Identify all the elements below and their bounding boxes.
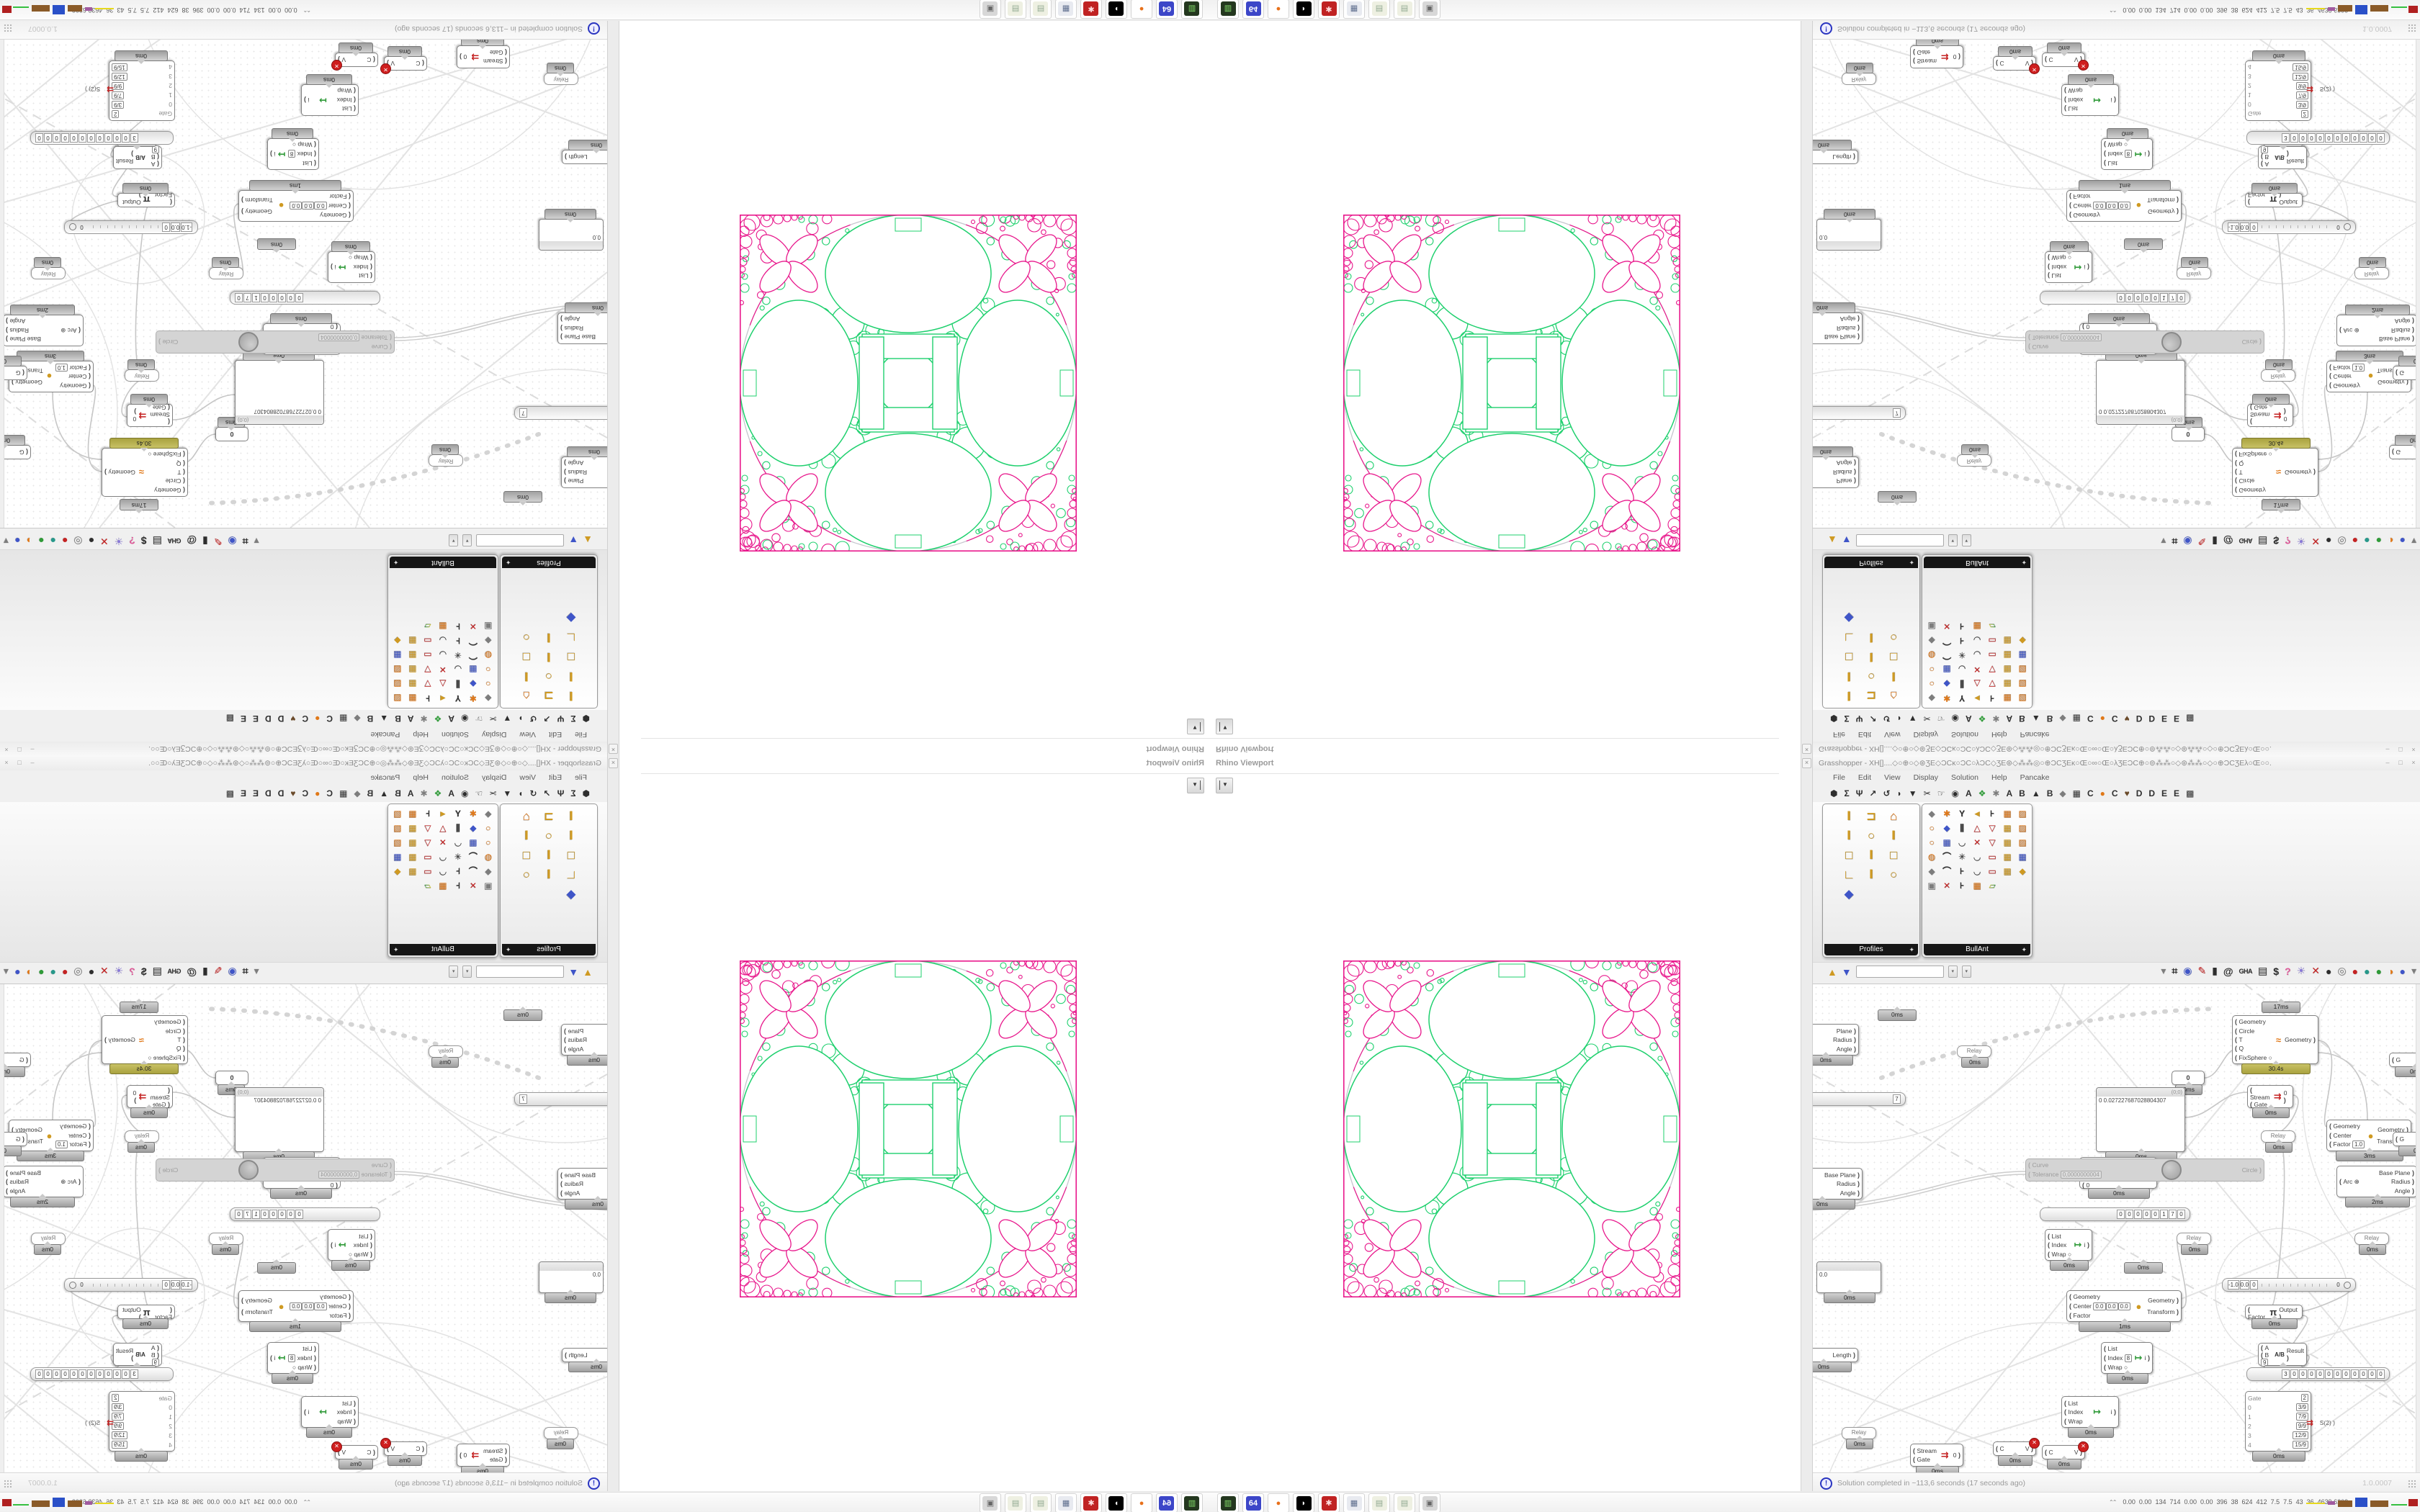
minimize-button[interactable]: – [28, 745, 37, 754]
bullant-component-icon[interactable]: ▨ [390, 662, 405, 676]
gh-component-node[interactable]: ( List( Index( Wrap↦i )0ms [301, 84, 359, 116]
toolbar-icon[interactable]: GHA [168, 968, 181, 975]
bullant-component-icon[interactable]: ◆ [1924, 865, 1939, 878]
component-tab-icon[interactable]: A [448, 714, 454, 724]
combo-dropdown-button[interactable]: ▾ [1948, 534, 1958, 546]
bullant-component-icon[interactable]: ▭ [421, 865, 435, 878]
profile-component-icon[interactable]: ∟ [1838, 865, 1860, 884]
viewport-dropdown-button[interactable]: ▼ [1187, 719, 1204, 734]
toolbar-icon[interactable]: $ [2273, 966, 2279, 977]
taskbar-app-notepad[interactable]: ▤ [1368, 1493, 1390, 1512]
palette-bullant-title[interactable]: BullAnt ✦ [390, 944, 496, 955]
bullant-component-icon[interactable]: ◍ [1924, 850, 1939, 864]
combo-dropdown-button[interactable]: ▾ [1962, 534, 1971, 546]
menu-item-view[interactable]: View [519, 730, 536, 739]
relay-node[interactable]: Relay0ms [2177, 267, 2211, 279]
profile-component-icon[interactable]: ◆ [1838, 885, 1860, 904]
component-tab-icon[interactable]: A [1966, 714, 1972, 724]
profile-component-icon[interactable]: ∟ [560, 628, 582, 647]
menu-item-edit[interactable]: Edit [1858, 730, 1871, 739]
palette-profiles-title[interactable]: Profiles ✦ [502, 944, 596, 955]
gh-component-node[interactable]: ( Arc ⊕Base Plane )Radius )Angle )2ms [2336, 1166, 2417, 1197]
bullant-component-icon[interactable]: ⊦ [1955, 865, 1969, 878]
toolbar-icon[interactable]: ▼ [568, 966, 578, 978]
gh-component-node[interactable]: ( GT )0ms [0, 445, 31, 459]
palette-expand-icon[interactable]: ✦ [506, 557, 511, 568]
taskbar-app-rhino[interactable]: ◗ [1293, 1493, 1314, 1512]
profile-component-icon[interactable]: Ⅰ [1838, 686, 1860, 705]
bullant-component-icon[interactable]: ○ [1924, 836, 1939, 850]
close-button[interactable]: × [2409, 758, 2418, 767]
bullant-component-icon[interactable]: ✳ [451, 850, 465, 864]
gh-component-node[interactable]: ( Arc ⊕Base Plane )Radius )Angle )2ms [2336, 315, 2417, 346]
bullant-component-icon[interactable]: ▦ [405, 822, 420, 835]
bullant-component-icon[interactable]: △ [436, 677, 450, 690]
menu-item-edit[interactable]: Edit [549, 730, 562, 739]
relay-node[interactable]: Relay0ms [544, 73, 578, 85]
profile-component-icon[interactable]: Ⅰ [1883, 827, 1904, 845]
gh-canvas[interactable]: 17ms( Geometry( Circle( T( Q( FixSphere … [1813, 984, 2420, 1473]
minimize-button[interactable]: – [28, 758, 37, 767]
component-tab-icon[interactable]: ♥ [290, 788, 295, 798]
toolbar-icon[interactable]: ● [2352, 536, 2358, 547]
bullant-component-icon[interactable]: ▦ [2015, 648, 2030, 662]
profile-component-icon[interactable]: ○ [1860, 827, 1882, 845]
toolbar-icon[interactable]: ● [2326, 966, 2331, 977]
viewport-dropdown-button[interactable]: ▼ [1187, 778, 1204, 793]
maximize-button[interactable]: □ [15, 758, 24, 767]
menu-item-file[interactable]: File [575, 773, 587, 782]
component-tab-icon[interactable]: ▩ [226, 714, 234, 724]
gh-component-node[interactable]: ( List( Index( Wrap ○↦i )0ms [2045, 1229, 2092, 1261]
taskbar-app-rhino[interactable]: ◗ [1106, 0, 1127, 19]
grasshopper-titlebar[interactable]: Grasshopper - XH[]....◇○⊕○◇⊛ƷE◇ƆCκ○ƆC○λƆ… [0, 756, 607, 770]
gh-component-node[interactable]: ( Geometry( Center 0.00.00.0( Factor●Geo… [238, 190, 354, 222]
toolbar-icon[interactable]: ● [2364, 966, 2370, 977]
taskbar-app-firefox[interactable]: ● [1131, 0, 1152, 19]
palette-expand-icon[interactable]: ✦ [393, 557, 399, 568]
profile-component-icon[interactable]: Ⅰ [1883, 667, 1904, 685]
profile-component-icon[interactable]: Ⅰ [538, 846, 560, 865]
panel-node[interactable]: 0.00ms [1816, 1261, 1881, 1293]
profile-component-icon[interactable]: Ⅰ [1860, 628, 1882, 647]
bullant-component-icon[interactable]: ▦ [1940, 836, 1954, 850]
toolbar-icon[interactable]: ✎ [214, 965, 223, 977]
bullant-component-icon[interactable]: ▦ [405, 662, 420, 676]
component-tab-icon[interactable]: A [408, 714, 414, 724]
profile-component-icon[interactable]: ⊐ [1860, 686, 1882, 705]
component-tab-icon[interactable]: ▼ [1909, 788, 1917, 798]
pane-divider[interactable]: × [607, 20, 619, 756]
component-tab-icon[interactable]: ▼ [503, 714, 511, 724]
value-slider-node[interactable]: -1.00.000 [64, 220, 198, 234]
component-tab-icon[interactable]: E [253, 714, 259, 724]
taskbar-app-firefox[interactable]: ● [1131, 1493, 1152, 1512]
component-tab-icon[interactable]: ▲ [2032, 788, 2040, 798]
profile-component-icon[interactable]: ⌂ [1883, 807, 1904, 826]
profile-component-icon[interactable]: ⊐ [538, 807, 560, 826]
relay-node[interactable]: Relay0ms [31, 1233, 66, 1245]
bullant-component-icon[interactable]: ▦ [466, 662, 480, 676]
bullant-component-icon[interactable]: ▨ [2015, 691, 2030, 705]
number-slider-node[interactable]: 00000170 [2040, 1207, 2190, 1221]
panel-node[interactable]: (0;0)0 0.0272276870288043070ms [235, 1087, 324, 1152]
relay-node[interactable]: Relay0ms [125, 1130, 159, 1143]
bullant-component-icon[interactable]: ▨ [390, 822, 405, 835]
toolbar-icon[interactable]: ▲ [583, 966, 593, 978]
profile-component-icon[interactable]: ⊐ [538, 686, 560, 705]
component-tab-icon[interactable]: ◆ [354, 714, 360, 724]
resize-grip[interactable] [2408, 24, 2416, 32]
stream-gate-node[interactable]: Gate203/917/929/9312/9415/9⇉S(2) )0ms [2245, 60, 2311, 121]
profile-component-icon[interactable]: ○ [538, 827, 560, 845]
gh-component-node[interactable]: ( Arc ⊕Base Plane )Radius )Angle )0ms [1813, 1168, 1863, 1200]
profile-component-icon[interactable]: ○ [1860, 667, 1882, 685]
bullant-component-icon[interactable]: ✳ [1955, 648, 1969, 662]
bullant-component-icon[interactable]: ◄ [436, 691, 450, 705]
bullant-component-icon[interactable]: ⊦ [451, 619, 465, 633]
gh-component-node[interactable]: ( Geometry( Circle( T( Q( FixSphere ○≈Ge… [2232, 1015, 2318, 1064]
gh-component-node[interactable]: ( CV )✕0ms [335, 53, 378, 67]
number-slider-node[interactable]: 300000000000 [2246, 131, 2390, 145]
component-tab-icon[interactable]: ❖ [1978, 714, 1986, 724]
gh-component-node[interactable]: ( Geometry( Center 0.00.00.0( Factor●Geo… [2066, 1290, 2182, 1322]
bullant-component-icon[interactable]: ▨ [390, 677, 405, 690]
maximize-button[interactable]: □ [2396, 758, 2405, 767]
gh-component-node[interactable]: ( Curve( Tolerance 0,0000000004Circle ) [2025, 1158, 2264, 1182]
gh-component-node[interactable]: ( List( Index( Wrap↦i )0ms [2061, 1396, 2119, 1428]
toolbar-icon[interactable]: ◉ [2183, 535, 2192, 547]
profiler-tag[interactable]: 17ms [120, 1002, 158, 1013]
bullant-component-icon[interactable]: ✕ [466, 619, 480, 633]
gh-component-node[interactable]: ( CurveLength )0ms [1813, 150, 1858, 164]
component-tab-icon[interactable]: A [448, 788, 454, 798]
bullant-component-icon[interactable]: ✕ [1940, 879, 1954, 893]
bullant-component-icon[interactable]: ▭ [1985, 865, 1999, 878]
bullant-component-icon[interactable]: ▦ [1940, 662, 1954, 676]
component-tab-icon[interactable]: D [265, 714, 272, 724]
bullant-component-icon[interactable]: ⊦ [1985, 807, 1999, 821]
bullant-component-icon[interactable]: ◍ [1924, 648, 1939, 662]
profile-component-icon[interactable]: ∟ [1838, 628, 1860, 647]
profile-component-icon[interactable]: Ⅰ [1838, 807, 1860, 826]
menu-item-display[interactable]: Display [482, 730, 506, 739]
component-tab-icon[interactable]: ⬢ [583, 788, 590, 798]
bullant-component-icon[interactable]: ▣ [1924, 879, 1939, 893]
profile-component-icon[interactable]: ∟ [560, 865, 582, 884]
bullant-component-icon[interactable]: ⊦ [421, 691, 435, 705]
profiler-tag[interactable]: 0ms [1878, 1009, 1917, 1021]
bullant-component-icon[interactable]: ◆ [1940, 822, 1954, 835]
grasshopper-titlebar[interactable]: Grasshopper - XH[]....◇○⊕○◇⊛ƷE◇ƆCκ○ƆC○λƆ… [0, 742, 607, 756]
taskbar-app-red-gear[interactable]: ✱ [1318, 0, 1340, 19]
toolbar-icon[interactable]: ? [2285, 966, 2291, 977]
toolbar-icon[interactable]: ◎ [73, 965, 82, 977]
canvas-scrollbar[interactable] [2416, 39, 2420, 528]
component-tab-icon[interactable]: ● [2100, 714, 2105, 724]
taskbar-app-printer[interactable]: ▣ [1419, 1493, 1440, 1512]
bullant-component-icon[interactable]: ▦ [405, 850, 420, 864]
relay-node[interactable]: Relay0ms [209, 267, 243, 279]
bullant-component-icon[interactable]: △ [436, 822, 450, 835]
bullant-component-icon[interactable]: ◡ [1955, 662, 1969, 676]
menu-item-display[interactable]: Display [1914, 730, 1938, 739]
profile-component-icon[interactable]: ◆ [1838, 608, 1860, 627]
bullant-component-icon[interactable]: ▦ [405, 836, 420, 850]
component-tab-icon[interactable]: ↺ [1883, 714, 1890, 724]
bullant-component-icon[interactable]: ○ [481, 677, 496, 690]
component-tab-icon[interactable]: ↗ [544, 788, 551, 798]
toolbar-icon[interactable]: ▼ [1842, 966, 1852, 978]
bullant-component-icon[interactable]: ○ [481, 836, 496, 850]
bullant-component-icon[interactable]: ▦ [2000, 836, 2015, 850]
gh-component-node[interactable]: ( A( B 9A/BResult )0ms [113, 146, 162, 169]
bullant-component-icon[interactable]: ▦ [2000, 865, 2015, 878]
bullant-component-icon[interactable]: ✳ [451, 648, 465, 662]
bullant-component-icon[interactable]: ▽ [421, 662, 435, 676]
collapse-arrows-icon[interactable]: ⌃⌃ [2109, 6, 2115, 13]
viewport-dropdown-button[interactable]: ▼ [1216, 778, 1233, 793]
resize-grip[interactable] [2408, 1480, 2416, 1488]
toolbar-icon[interactable]: ● [2364, 536, 2370, 547]
palette-bullant-title[interactable]: BullAnt ✦ [390, 557, 496, 568]
bullant-component-icon[interactable]: ◍ [481, 648, 496, 662]
maximize-button[interactable]: □ [15, 745, 24, 754]
taskbar-app-notepad-2[interactable]: ▤ [1005, 1493, 1026, 1512]
toolbar-icon[interactable]: ▮ [2212, 965, 2218, 977]
combo-dropdown-button[interactable]: ▾ [1948, 966, 1958, 978]
bullant-component-icon[interactable]: Y [1955, 807, 1969, 821]
relay-node[interactable]: Relay0ms [2177, 1233, 2211, 1245]
gh-canvas[interactable]: 17ms( Geometry( Circle( T( Q( FixSphere … [0, 984, 607, 1473]
profile-component-icon[interactable]: □ [1838, 846, 1860, 865]
toolbar-icon[interactable]: ◑ [2388, 966, 2393, 977]
bullant-component-icon[interactable]: ▦ [2000, 648, 2015, 662]
menu-item-view[interactable]: View [1884, 773, 1901, 782]
toolbar-icon[interactable]: ◎ [2337, 965, 2346, 977]
toolbar-icon[interactable]: ✕ [100, 535, 109, 547]
toolbar-icon[interactable]: $ [2273, 536, 2279, 547]
gh-component-node[interactable]: ( FactorπOutput )0ms [2245, 1305, 2303, 1319]
taskbar-app-calculator[interactable]: ▦ [1055, 0, 1077, 19]
toolbar-icon[interactable]: ▤ [153, 535, 162, 547]
component-tab-icon[interactable]: ☞ [475, 788, 483, 798]
bullant-component-icon[interactable]: ◡ [1970, 865, 1984, 878]
bullant-component-icon[interactable]: ◄ [1970, 807, 1984, 821]
toolbar-icon[interactable]: ✎ [2197, 535, 2206, 547]
gh-component-node[interactable]: Plane )Radius )Angle )0ms [1813, 456, 1859, 488]
toolbar-icon[interactable]: ▲ [1827, 535, 1837, 546]
component-tab-icon[interactable]: ◉ [461, 714, 468, 724]
profile-component-icon[interactable]: □ [560, 846, 582, 865]
bullant-component-icon[interactable]: ▦ [2000, 662, 2015, 676]
gh-canvas[interactable]: 17ms( Geometry( Circle( T( Q( FixSphere … [0, 39, 607, 528]
gh-component-node[interactable]: ( Stream( Gate⇉0 )0ms [457, 1444, 510, 1467]
bullant-component-icon[interactable]: Y [451, 807, 465, 821]
bullant-component-icon[interactable]: ▦ [2000, 677, 2015, 690]
taskbar-app-system-monitor[interactable]: ▥ [1217, 0, 1239, 19]
bullant-component-icon[interactable]: ▭ [421, 634, 435, 647]
bullant-component-icon[interactable]: Y [1955, 691, 1969, 705]
gh-component-node[interactable]: ( Arc ⊕Base Plane )Radius )Angle )2ms [3, 1166, 84, 1197]
toolbar-icon[interactable]: ? [129, 536, 135, 547]
toolbar-icon[interactable]: ▾ [254, 535, 259, 547]
profile-component-icon[interactable]: Ⅰ [560, 667, 582, 685]
bullant-component-icon[interactable]: ▨ [2015, 807, 2030, 821]
gh-component-node[interactable]: 00ms [2172, 427, 2205, 441]
gh-component-node[interactable]: ( List( Index 8( Wrap ○↦i )0ms [267, 138, 319, 170]
bullant-component-icon[interactable]: ◆ [481, 865, 496, 878]
component-tab-icon[interactable]: ↺ [529, 714, 537, 724]
bullant-component-icon[interactable]: ▭ [1985, 850, 1999, 864]
component-tab-icon[interactable]: ♥ [290, 714, 295, 724]
bullant-component-icon[interactable]: ✳ [1955, 850, 1969, 864]
taskbar-app-floppy-64[interactable]: 64 [1242, 1493, 1264, 1512]
bullant-component-icon[interactable]: ▦ [405, 807, 420, 821]
relay-node[interactable]: Relay0ms [31, 267, 66, 279]
taskbar-app-calculator[interactable]: ▦ [1343, 1493, 1365, 1512]
gh-component-node[interactable]: ( FactorπOutput )0ms [2245, 193, 2303, 207]
profiler-tag[interactable]: 0ms [2124, 1262, 2163, 1274]
gh-component-node[interactable]: ( List( Index( Wrap↦i )0ms [301, 1396, 359, 1428]
canvas-scrollbar[interactable] [2416, 984, 2420, 1473]
bullant-component-icon[interactable]: △ [1970, 822, 1984, 835]
relay-node[interactable]: Relay0ms [429, 454, 463, 467]
relay-node[interactable]: Relay0ms [2354, 267, 2389, 279]
toolbar-icon[interactable]: ▾ [2411, 535, 2416, 547]
menu-item-file[interactable]: File [1833, 730, 1845, 739]
bullant-component-icon[interactable]: ⌒ [1940, 865, 1954, 878]
profile-component-icon[interactable]: □ [516, 846, 537, 865]
component-tab-icon[interactable]: ◗ [518, 714, 523, 724]
profile-component-icon[interactable]: ◆ [560, 885, 582, 904]
toolbar-icon[interactable]: ▮ [202, 535, 208, 547]
gh-component-node[interactable]: ( GT )0ms [0, 1053, 31, 1067]
bullant-component-icon[interactable]: ◆ [1940, 677, 1954, 690]
toolbar-icon[interactable]: ● [2400, 536, 2406, 547]
toolbar-icon[interactable]: ☀ [115, 535, 124, 547]
bullant-component-icon[interactable]: ▨ [2015, 677, 2030, 690]
palette-expand-icon[interactable]: ✦ [1909, 557, 1914, 568]
component-tab-icon[interactable]: ● [2100, 788, 2105, 798]
component-tab-icon[interactable]: C [326, 714, 333, 724]
gh-component-node[interactable]: ( Curve( Tolerance 0,0000000004Circle ) [2025, 330, 2264, 354]
bullant-component-icon[interactable]: ▦ [2000, 807, 2015, 821]
bullant-component-icon[interactable]: ▽ [421, 836, 435, 850]
taskbar-app-floppy-64[interactable]: 64 [1156, 1493, 1178, 1512]
toolbar-icon[interactable]: ✕ [100, 965, 109, 977]
component-tab-icon[interactable]: ✂ [489, 714, 496, 724]
profile-component-icon[interactable]: Ⅰ [1860, 647, 1882, 666]
stream-gate-node[interactable]: Gate203/917/929/9312/9415/9⇉S(2) )0ms [109, 60, 175, 121]
pane-divider[interactable]: × [1801, 756, 1813, 1492]
component-tab-icon[interactable]: ☞ [1937, 788, 1945, 798]
profiler-tag[interactable]: 0ms [1878, 491, 1917, 503]
bullant-component-icon[interactable]: ▦ [405, 865, 420, 878]
toolbar-icon[interactable]: GHA [2239, 968, 2253, 975]
component-tab-icon[interactable]: Ψ [557, 714, 565, 724]
bullant-component-icon[interactable]: ◆ [1924, 807, 1939, 821]
toolbar-icon[interactable]: ● [62, 966, 68, 977]
bullant-component-icon[interactable]: ▣ [1924, 619, 1939, 633]
bullant-component-icon[interactable]: ○ [1924, 677, 1939, 690]
toolbar-icon[interactable]: ◉ [228, 535, 237, 547]
taskbar-app-calculator[interactable]: ▦ [1055, 1493, 1077, 1512]
bullant-component-icon[interactable]: ◆ [466, 677, 480, 690]
value-slider-node[interactable]: -1.00.000 [2222, 220, 2356, 234]
panel-node[interactable]: (0;0)0 0.0272276870288043070ms [235, 360, 324, 425]
component-tab-icon[interactable]: ◆ [2059, 788, 2066, 798]
bullant-component-icon[interactable]: ⊦ [451, 634, 465, 647]
toolbar-icon[interactable]: ? [2285, 536, 2291, 547]
component-tab-icon[interactable]: E [2161, 714, 2167, 724]
close-icon[interactable]: × [609, 758, 618, 768]
toolbar-icon[interactable]: @ [2223, 966, 2233, 977]
close-icon[interactable]: × [1802, 758, 1811, 768]
component-tab-icon[interactable]: ↗ [1869, 788, 1876, 798]
panel-node[interactable]: (0;0)0 0.0272276870288043070ms [2096, 1087, 2185, 1152]
collapse-arrows-icon[interactable]: ⌃⌃ [2109, 1499, 2115, 1506]
component-tab-icon[interactable]: ✂ [489, 788, 496, 798]
menu-item-solution[interactable]: Solution [1951, 730, 1978, 739]
number-slider-node[interactable]: 300000000000 [2246, 1367, 2390, 1381]
bullant-component-icon[interactable]: ◡ [1970, 648, 1984, 662]
toolbar-icon[interactable]: ▤ [153, 965, 162, 977]
menu-item-pancake[interactable]: Pancake [2020, 730, 2050, 739]
bullant-component-icon[interactable]: ◄ [1970, 691, 1984, 705]
component-tab-icon[interactable]: D [265, 788, 272, 798]
bullant-component-icon[interactable]: ◆ [1924, 634, 1939, 647]
gh-component-node[interactable]: ( List( Index( Wrap ○↦i )0ms [328, 1229, 375, 1261]
gh-component-node[interactable]: ( CV )✕0ms [1993, 1441, 2036, 1456]
bullant-component-icon[interactable]: ✕ [466, 879, 480, 893]
menu-item-display[interactable]: Display [482, 773, 506, 782]
gh-component-node[interactable]: ( FactorπOutput )0ms [117, 193, 175, 207]
taskbar-app-notepad[interactable]: ▤ [1030, 0, 1052, 19]
profile-component-icon[interactable]: Ⅰ [538, 865, 560, 884]
taskbar-app-red-gear[interactable]: ✱ [1080, 1493, 1102, 1512]
component-tab-icon[interactable]: ⬢ [1830, 714, 1837, 724]
component-tab-icon[interactable]: ▦ [339, 788, 347, 798]
relay-node[interactable]: Relay0ms [2354, 1233, 2389, 1245]
gh-component-node[interactable]: ( CV )✕0ms [2042, 53, 2085, 67]
bullant-component-icon[interactable]: ◡ [436, 850, 450, 864]
profile-component-icon[interactable]: Ⅰ [516, 667, 537, 685]
gh-component-node[interactable]: ( CurveLength )0ms [562, 1348, 607, 1362]
minimize-button[interactable]: – [2383, 745, 2392, 754]
bullant-component-icon[interactable]: ⫼ [451, 822, 465, 835]
component-tab-icon[interactable]: B [395, 788, 401, 798]
bullant-component-icon[interactable]: ▨ [390, 807, 405, 821]
bullant-component-icon[interactable]: ▱ [421, 879, 435, 893]
profile-component-icon[interactable]: ⌂ [1883, 686, 1904, 705]
bullant-component-icon[interactable]: ▭ [1985, 634, 1999, 647]
close-icon[interactable]: × [1802, 744, 1811, 754]
palette-expand-icon[interactable]: ✦ [2021, 557, 2027, 568]
canvas-search-input[interactable] [476, 534, 564, 546]
close-button[interactable]: × [2, 745, 11, 754]
toolbar-icon[interactable]: ◎ [73, 535, 82, 547]
component-tab-icon[interactable]: Σ [1844, 714, 1849, 724]
toolbar-icon[interactable]: ▾ [4, 965, 9, 977]
palette-expand-icon[interactable]: ✦ [1909, 944, 1914, 955]
toolbar-icon[interactable]: ● [38, 536, 44, 547]
taskbar-app-floppy-64[interactable]: 64 [1156, 0, 1178, 19]
bullant-component-icon[interactable]: ◡ [1970, 634, 1984, 647]
bullant-component-icon[interactable]: ▦ [2000, 850, 2015, 864]
bullant-component-icon[interactable]: ⌒ [466, 648, 480, 662]
component-tab-icon[interactable]: B [2019, 788, 2025, 798]
